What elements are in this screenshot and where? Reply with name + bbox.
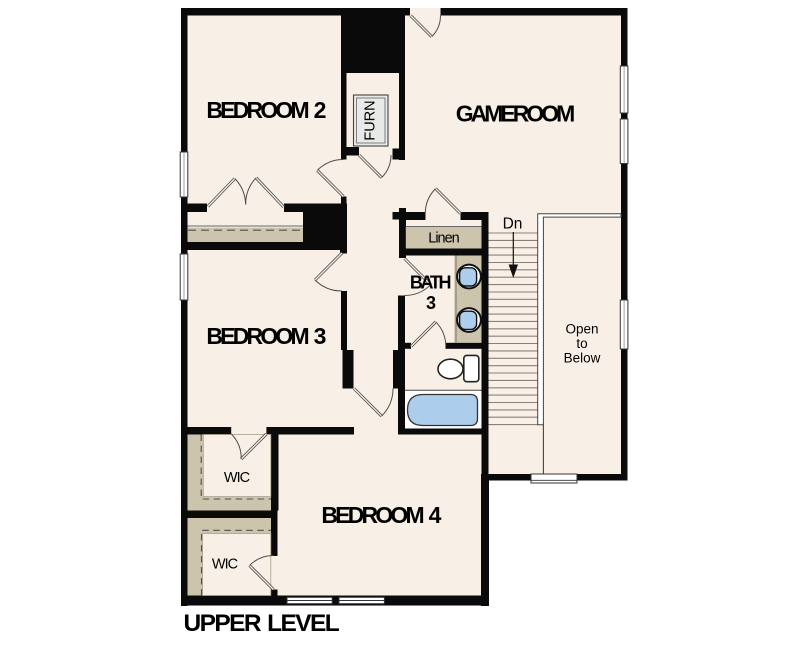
svg-text:BATH: BATH xyxy=(410,273,451,293)
svg-text:Open: Open xyxy=(565,322,598,337)
svg-text:BEDROOM 2: BEDROOM 2 xyxy=(206,97,325,123)
svg-text:BEDROOM 4: BEDROOM 4 xyxy=(321,502,441,528)
svg-text:to: to xyxy=(576,336,587,351)
svg-text:GAMEROOM: GAMEROOM xyxy=(456,101,574,127)
svg-text:3: 3 xyxy=(426,293,436,313)
svg-text:Dn: Dn xyxy=(503,216,523,233)
svg-text:UPPER LEVEL: UPPER LEVEL xyxy=(184,610,340,637)
svg-text:Linen: Linen xyxy=(428,231,459,247)
svg-text:FURN: FURN xyxy=(362,100,378,140)
svg-text:WIC: WIC xyxy=(212,557,238,573)
svg-text:Below: Below xyxy=(564,351,601,366)
svg-text:BEDROOM 3: BEDROOM 3 xyxy=(206,323,325,349)
svg-text:WIC: WIC xyxy=(224,470,250,486)
